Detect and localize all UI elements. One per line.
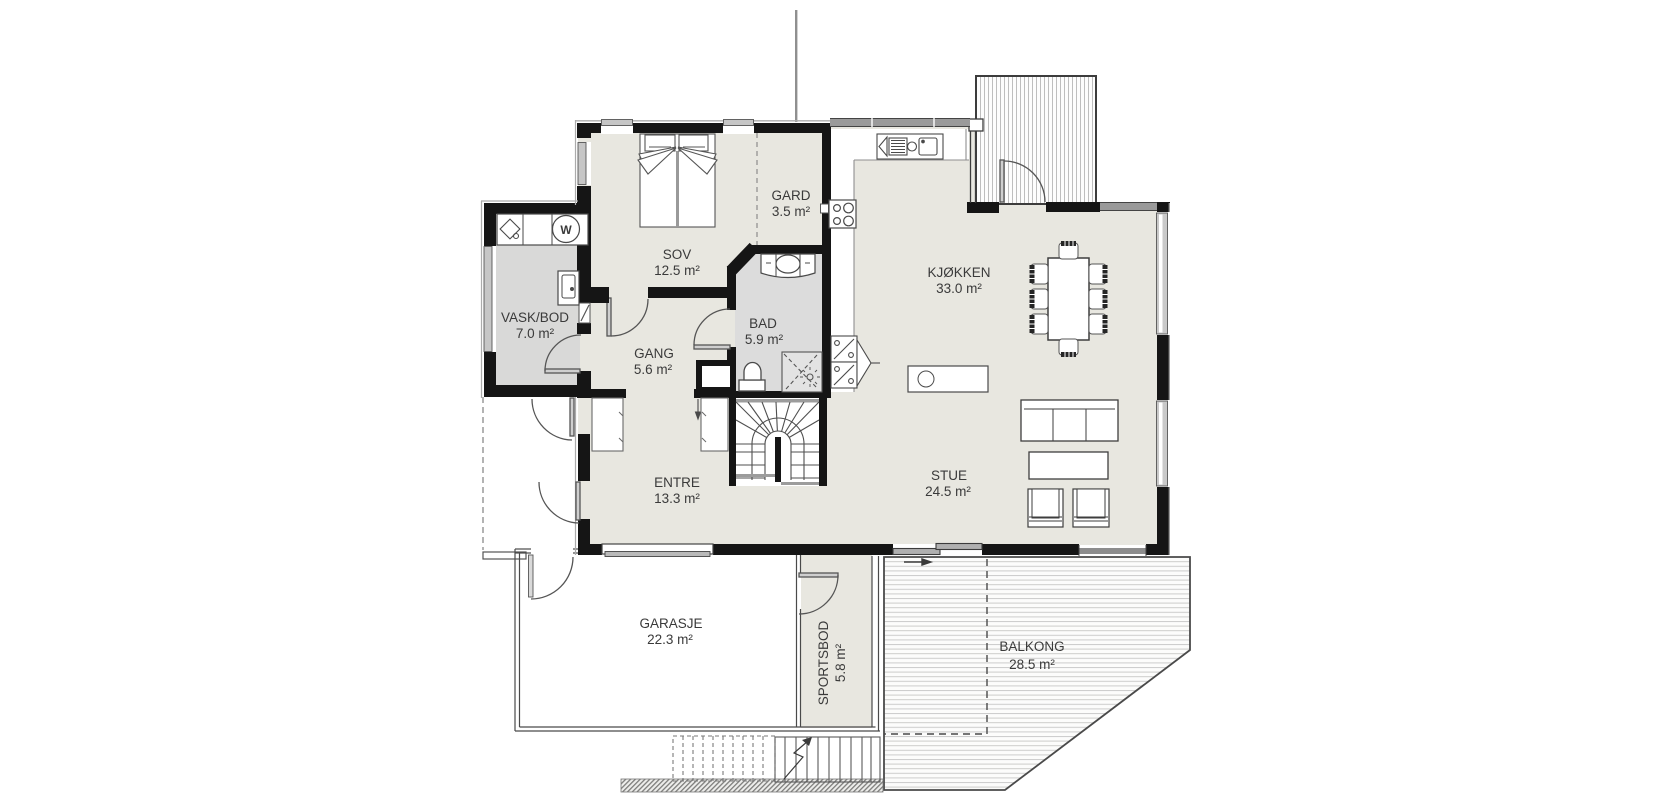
svg-text:BAD: BAD [749, 316, 777, 331]
svg-text:KJØKKEN: KJØKKEN [927, 265, 990, 280]
svg-text:5.9 m²: 5.9 m² [745, 332, 784, 347]
svg-text:7.0 m²: 7.0 m² [516, 326, 555, 341]
svg-text:GANG: GANG [634, 346, 674, 361]
svg-text:SPORTSBOD: SPORTSBOD [816, 620, 831, 705]
svg-text:STUE: STUE [931, 468, 967, 483]
svg-text:SOV: SOV [663, 247, 692, 262]
svg-text:22.3 m²: 22.3 m² [647, 632, 693, 647]
svg-text:24.5 m²: 24.5 m² [925, 484, 971, 499]
svg-text:W: W [560, 223, 572, 237]
svg-text:33.0 m²: 33.0 m² [936, 281, 982, 296]
svg-text:3.5 m²: 3.5 m² [772, 204, 811, 219]
svg-text:5.8 m²: 5.8 m² [833, 643, 848, 682]
svg-text:GARASJE: GARASJE [639, 616, 702, 631]
svg-text:5.6 m²: 5.6 m² [634, 362, 673, 377]
svg-text:BALKONG: BALKONG [999, 639, 1064, 654]
svg-text:GARD: GARD [771, 188, 810, 203]
svg-text:12.5 m²: 12.5 m² [654, 263, 700, 278]
svg-text:ENTRE: ENTRE [654, 475, 700, 490]
svg-text:28.5 m²: 28.5 m² [1009, 657, 1055, 672]
svg-text:13.3 m²: 13.3 m² [654, 491, 700, 506]
svg-text:VASK/BOD: VASK/BOD [501, 310, 569, 325]
